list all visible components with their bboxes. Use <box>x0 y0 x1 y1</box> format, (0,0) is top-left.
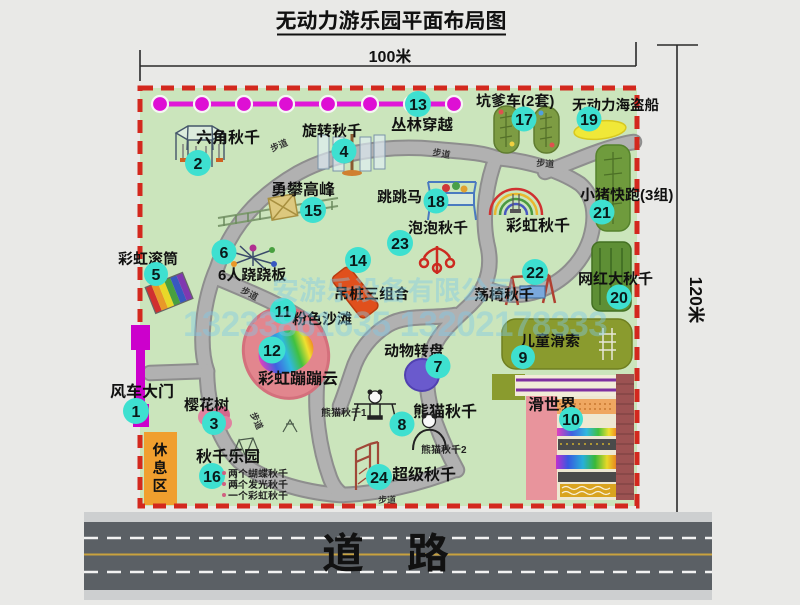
svg-text:3: 3 <box>210 416 219 433</box>
svg-text:12: 12 <box>263 343 281 360</box>
svg-text:路: 路 <box>407 530 449 577</box>
svg-text:1: 1 <box>132 404 141 421</box>
svg-text:彩虹秋千: 彩虹秋千 <box>506 217 570 235</box>
svg-text:泡泡秋千: 泡泡秋千 <box>408 220 468 237</box>
svg-text:安游乐设备有限公司: 安游乐设备有限公司 <box>272 276 515 306</box>
svg-text:4: 4 <box>340 144 349 161</box>
svg-text:息: 息 <box>152 460 167 477</box>
svg-text:风车大门: 风车大门 <box>110 383 174 401</box>
svg-text:5: 5 <box>152 267 161 284</box>
svg-text:13: 13 <box>409 97 427 114</box>
svg-text:100米: 100米 <box>369 48 412 66</box>
svg-text:彩虹蹦蹦云: 彩虹蹦蹦云 <box>258 370 338 388</box>
svg-text:16: 16 <box>203 469 221 486</box>
svg-text:跳跳马: 跳跳马 <box>377 189 422 206</box>
svg-text:23: 23 <box>391 236 409 253</box>
svg-text:24: 24 <box>370 470 388 487</box>
svg-text:熊猫秋千2: 熊猫秋千2 <box>421 444 467 456</box>
svg-text:两个发光秋千: 两个发光秋千 <box>228 479 288 491</box>
svg-text:道: 道 <box>322 530 364 577</box>
svg-text:21: 21 <box>593 205 611 222</box>
svg-text:20: 20 <box>610 290 628 307</box>
svg-text:2: 2 <box>194 156 203 173</box>
svg-text:两个蝴蝶秋千: 两个蝴蝶秋千 <box>228 468 288 480</box>
svg-text:无动力游乐园平面布局图: 无动力游乐园平面布局图 <box>276 10 507 33</box>
svg-text:小猪快跑(3组): 小猪快跑(3组) <box>580 187 673 204</box>
svg-text:19: 19 <box>580 112 598 129</box>
svg-text:勇攀高峰: 勇攀高峰 <box>271 181 335 199</box>
svg-text:17: 17 <box>515 112 533 129</box>
svg-text:樱花树: 樱花树 <box>184 397 229 414</box>
svg-text:22: 22 <box>526 265 544 282</box>
svg-text:秋千乐园: 秋千乐园 <box>196 448 260 466</box>
svg-text:6: 6 <box>220 245 229 262</box>
svg-text:14: 14 <box>349 253 367 270</box>
svg-text:坑爹车(2套): 坑爹车(2套) <box>476 93 554 110</box>
svg-text:超级秋千: 超级秋千 <box>392 466 456 484</box>
svg-text:六角秋千: 六角秋千 <box>196 129 260 147</box>
svg-text:休: 休 <box>152 442 167 459</box>
svg-text:丛林穿越: 丛林穿越 <box>391 116 454 134</box>
svg-text:13233861635 13202178333: 13233861635 13202178333 <box>183 305 607 344</box>
svg-text:8: 8 <box>398 417 407 434</box>
svg-text:18: 18 <box>427 194 445 211</box>
svg-text:旋转秋千: 旋转秋千 <box>302 123 362 140</box>
svg-text:一个彩虹秋千: 一个彩虹秋千 <box>228 490 288 502</box>
svg-text:10: 10 <box>562 412 580 429</box>
svg-text:9: 9 <box>519 350 528 367</box>
svg-text:120米: 120米 <box>686 277 706 324</box>
svg-text:7: 7 <box>434 359 443 376</box>
svg-text:熊猫秋千1: 熊猫秋千1 <box>321 407 367 419</box>
svg-text:区: 区 <box>152 478 167 495</box>
svg-text:步道: 步道 <box>536 158 555 169</box>
svg-text:15: 15 <box>304 203 322 220</box>
